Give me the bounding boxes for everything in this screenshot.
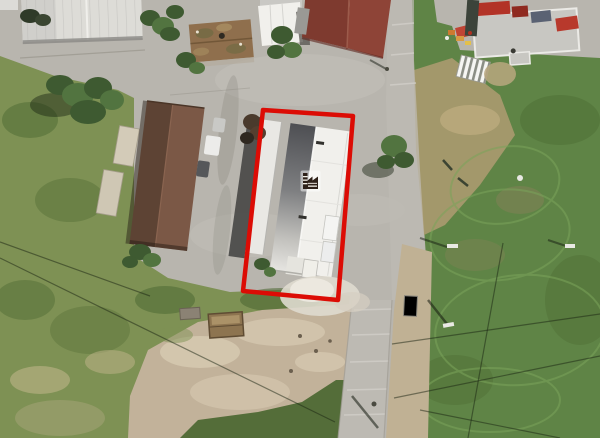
dirt-patch: [484, 62, 516, 86]
white-van: [322, 215, 339, 241]
small-container: [180, 307, 201, 319]
blue-car: [531, 10, 552, 23]
dark-mast: [465, 0, 479, 36]
white-van: [321, 241, 337, 263]
dark-car: [196, 160, 210, 178]
red-truck: [476, 1, 511, 16]
red-truck: [512, 5, 529, 17]
small-white-shed: [403, 296, 417, 317]
factory-icon: [301, 171, 321, 192]
gray-car: [212, 117, 226, 133]
aerial-photo: [0, 0, 600, 438]
building-rusty-roof: [189, 19, 255, 67]
aerial-scene: [0, 0, 600, 438]
white-hut: [302, 259, 318, 279]
white-car: [204, 135, 221, 156]
roof-corner-topleft: [0, 0, 18, 10]
